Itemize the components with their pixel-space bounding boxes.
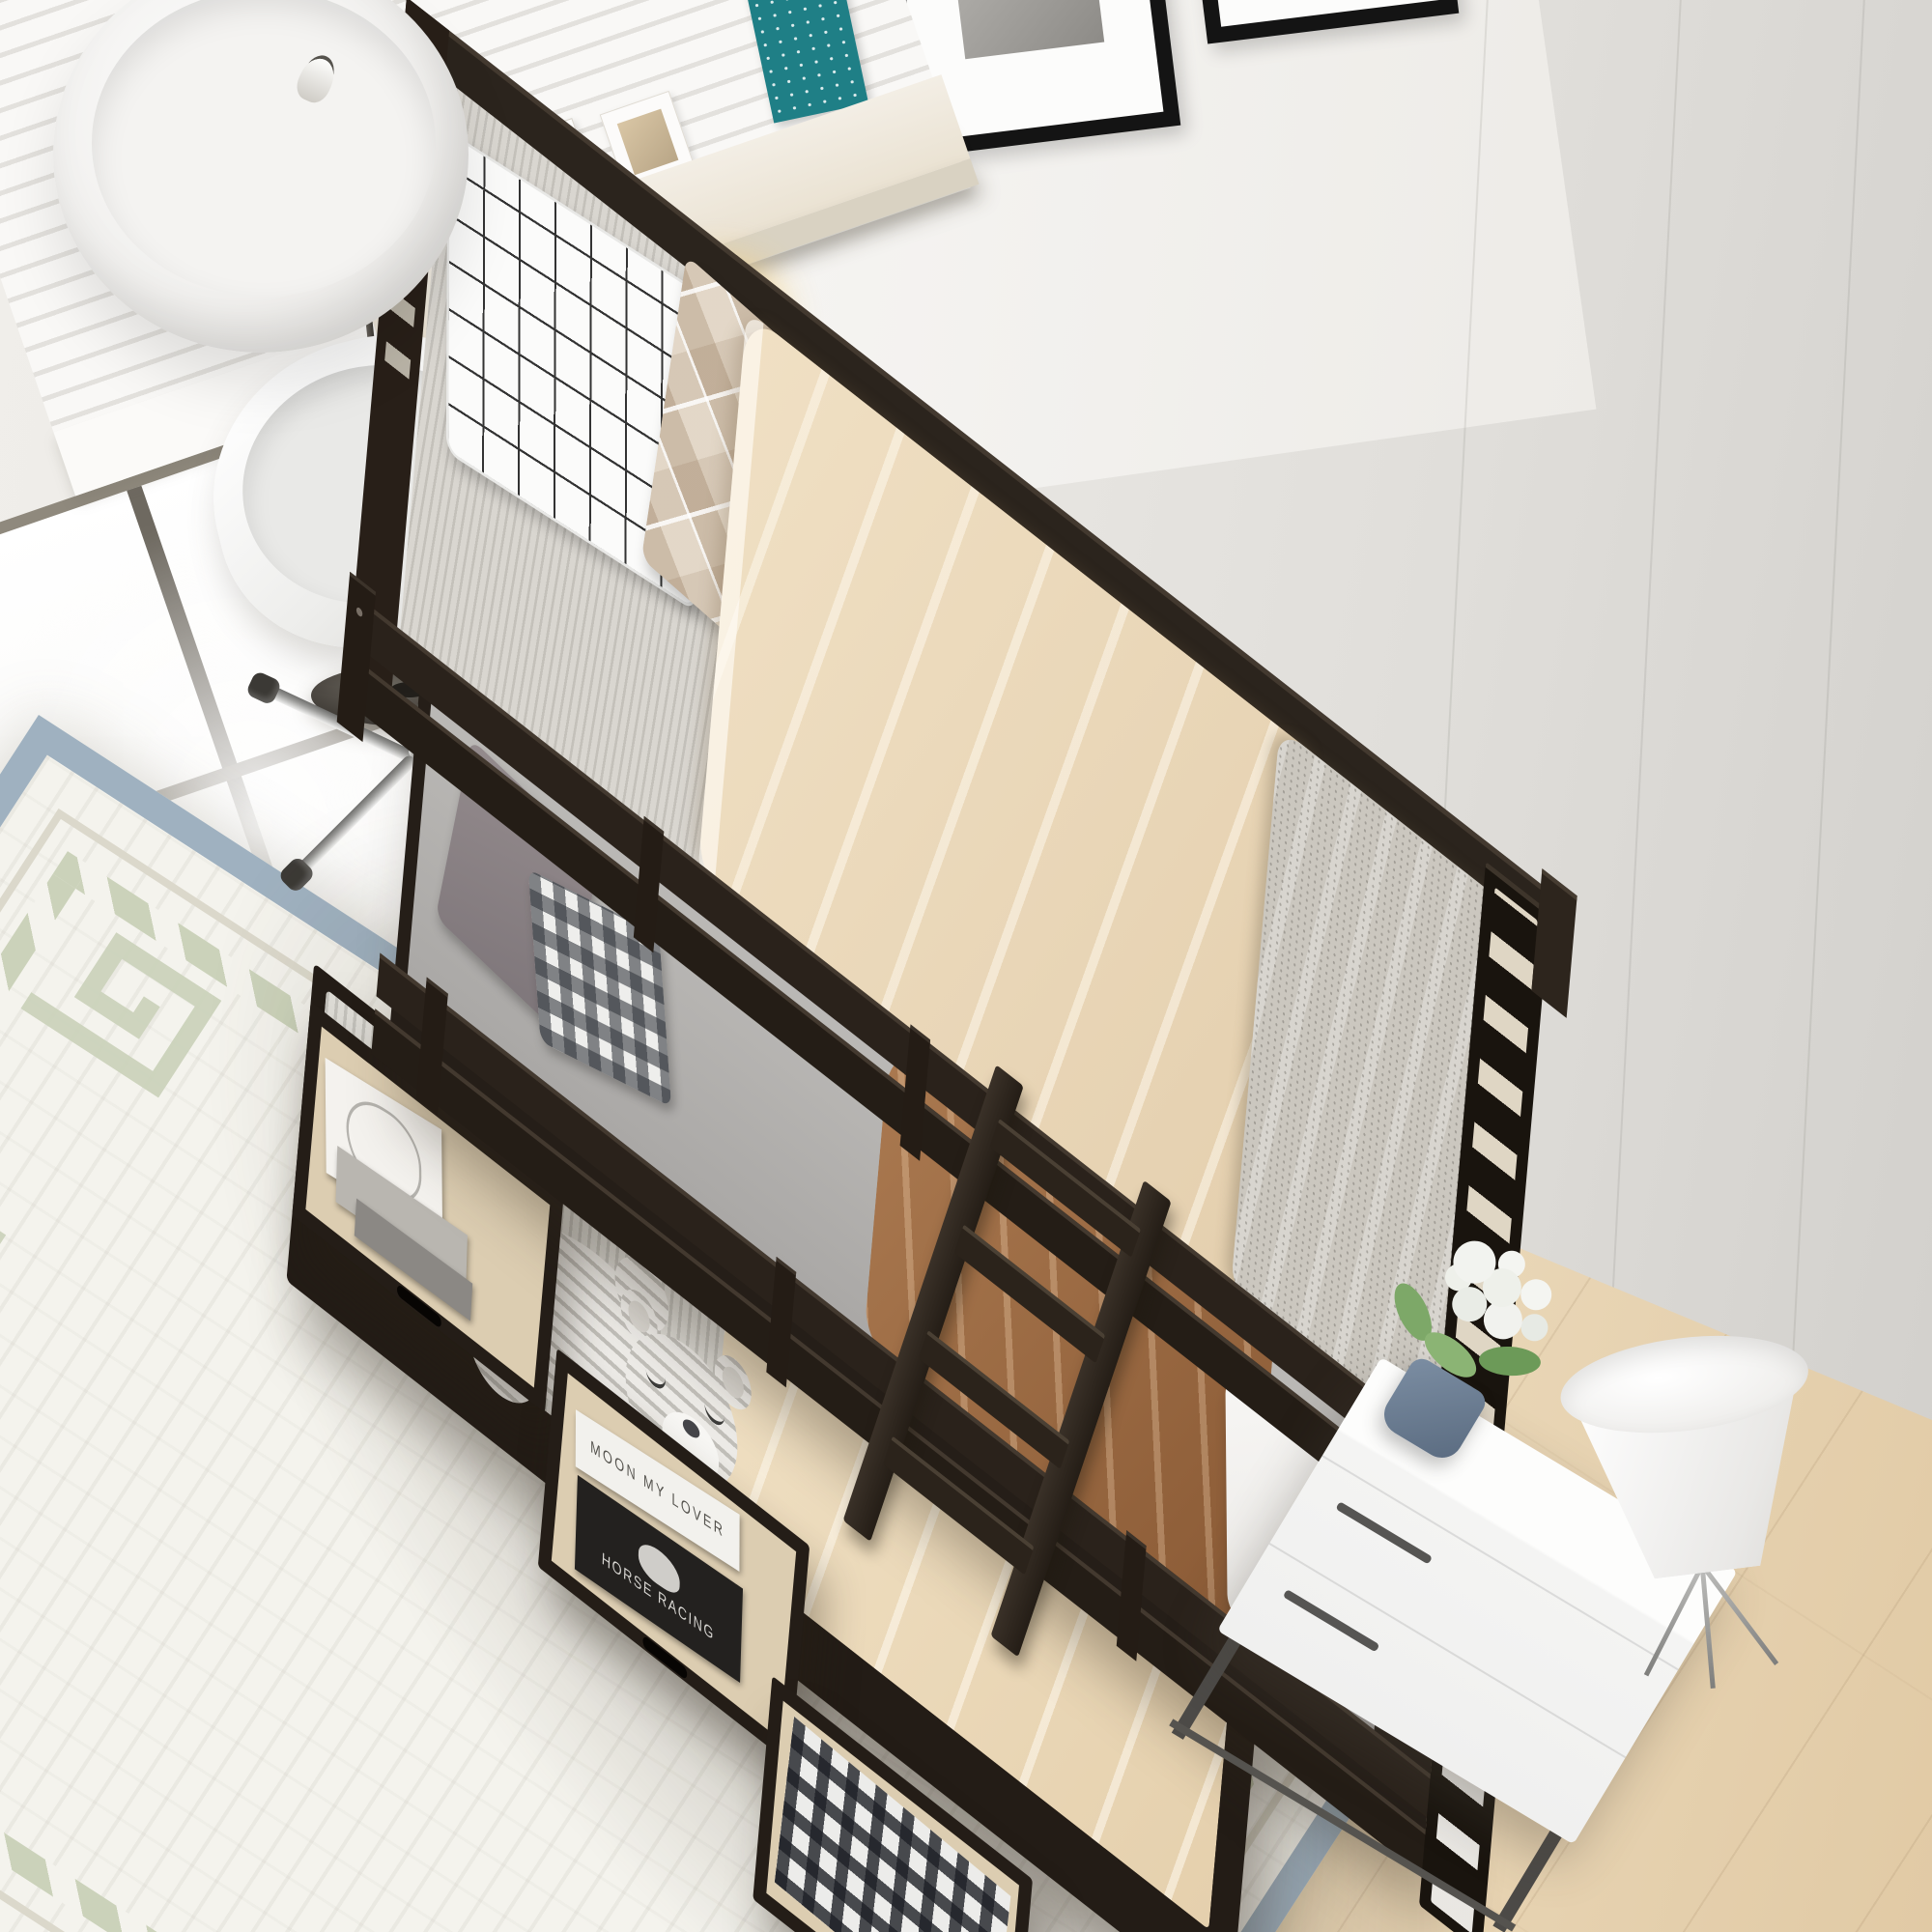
teddy-ear-inner (628, 1296, 651, 1338)
desk-photo (617, 109, 679, 176)
table-lamp (1549, 1322, 1841, 1623)
teal-magazine (740, 0, 869, 124)
ladder-rung (883, 1435, 1034, 1575)
bedroom-scene: LOB MOON MY LOVER HORSE RACING (0, 0, 1932, 1932)
plant-leaf (1478, 1345, 1541, 1377)
wall-seam (1603, 0, 1684, 1467)
ladder-rung (919, 1330, 1069, 1469)
drawer-seam (1269, 1543, 1627, 1758)
floor-lamp-shade-inner (92, 0, 436, 297)
frame-photo (945, 0, 1104, 59)
nightstand-drawer-handle (1283, 1589, 1380, 1652)
nightstand-drawer-handle (1335, 1501, 1433, 1564)
wall-seam (1786, 0, 1867, 1467)
ladder-rung (954, 1224, 1105, 1363)
